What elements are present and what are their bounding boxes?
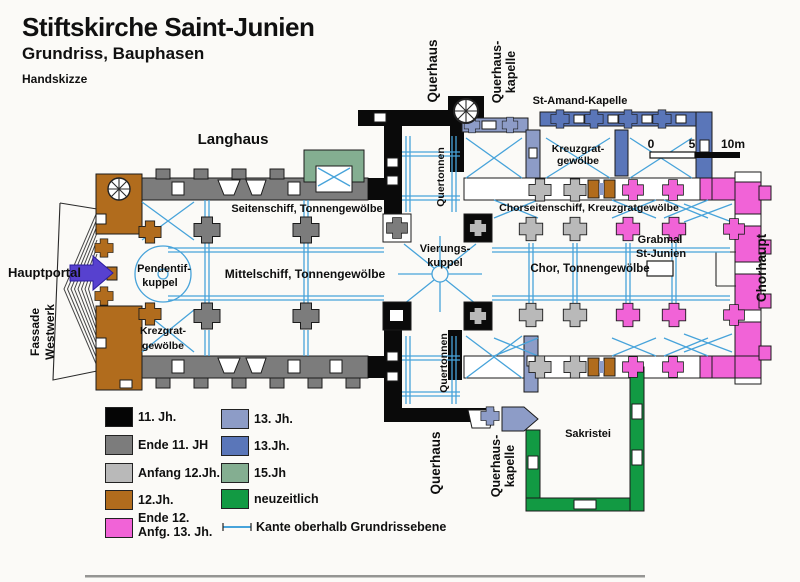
legend-label-ende12-1: Ende 12. <box>138 512 189 525</box>
label-querhaus-kapelle-north-1: Querhaus- <box>490 41 504 104</box>
legend-label-13jh-hell: 13. Jh. <box>254 413 293 426</box>
page: Stiftskirche Saint-Junien Grundriss, Bau… <box>0 0 800 582</box>
legend-label-anfang12: Anfang 12.Jh. <box>138 467 220 480</box>
legend-label-neuzeitlich: neuzeitlich <box>254 493 319 506</box>
label-quertonnen-south: Quertonnen <box>438 333 450 393</box>
scale-ten: 10m <box>721 137 745 151</box>
legend-swatch-11jh <box>105 407 133 427</box>
label-hauptportal: Hauptportal <box>8 265 81 280</box>
legend-swatch-12jh <box>105 490 133 510</box>
label-mittelschiff: Mittelschiff, Tonnengewölbe <box>225 267 386 281</box>
scale-zero: 0 <box>648 137 655 151</box>
label-querhaus-south: Querhaus <box>428 431 443 494</box>
label-st-amand: St-Amand-Kapelle <box>533 95 628 107</box>
legend-swatch-ende12 <box>105 518 133 538</box>
tomb-rectangle <box>647 261 673 276</box>
label-querhaus-kapelle-south-2: kapelle <box>503 445 517 487</box>
nave-south-wall <box>142 356 386 388</box>
altar-rectangle <box>716 252 736 286</box>
label-kreuzgrat-2: gewölbe <box>557 155 599 167</box>
legend-label-edge-note: Kante oberhalb Grundrissebene <box>256 521 446 534</box>
label-sakristei: Sakristei <box>565 428 611 440</box>
legend-label-12jh: 12.Jh. <box>138 494 173 507</box>
legend-label-ende11: Ende 11. JH <box>138 439 208 452</box>
legend-swatch-neuzeitlich <box>221 489 249 509</box>
legend-swatch-15jh <box>221 463 249 483</box>
label-fassade-2: Westwerk <box>43 304 57 360</box>
choir-north-wall <box>464 178 736 200</box>
legend-label-ende12-2: Anfg. 13. Jh. <box>138 526 212 539</box>
label-chorhaupt: Chorhaupt <box>754 233 769 302</box>
label-grabmal-1: Grabmal <box>638 234 683 246</box>
scan-edge-line <box>85 575 645 578</box>
label-chorseitenschiff: Chorseitenschiff, Kreuzgratgewölbe <box>499 202 679 214</box>
label-krezgrat-1: Krezgrat- <box>140 325 187 337</box>
choir-south-wall <box>464 356 736 378</box>
west-facade-steps <box>53 203 97 380</box>
label-querhaus-kapelle-south-1: Querhaus- <box>489 435 503 498</box>
legend-swatch-13jh-hell <box>221 409 249 429</box>
crossing-pillars <box>383 214 492 330</box>
stair-turret-northwest <box>108 178 130 200</box>
legend-swatch-ende11 <box>105 435 133 455</box>
label-kreuzgrat-1: Kreuzgrat- <box>552 143 605 155</box>
label-krezgrat-2: gewölbe <box>142 340 184 352</box>
label-pendentifkuppel-1: Pendentif- <box>137 263 191 275</box>
legend-label-11jh: 11. Jh. <box>138 411 176 424</box>
legend-label-13jh: 13.Jh. <box>254 440 289 453</box>
legend-label-15jh: 15.Jh <box>254 467 286 480</box>
label-grabmal-2: St-Junien <box>636 248 686 260</box>
legend-swatch-13jh <box>221 436 249 456</box>
edge-line-symbol <box>220 521 254 533</box>
label-seitenschiff: Seitenschiff, Tonnengewölbe <box>231 203 382 215</box>
label-querhaus-kapelle-north-2: kapelle <box>504 51 518 93</box>
label-vierungskuppel-1: Vierungs- <box>420 243 471 255</box>
label-langhaus: Langhaus <box>198 131 269 148</box>
scale-five: 5 <box>689 137 696 151</box>
stair-turret-transept <box>454 99 478 123</box>
legend-swatch-anfang12 <box>105 463 133 483</box>
label-pendentifkuppel-2: kuppel <box>142 277 177 289</box>
label-quertonnen-north: Quertonnen <box>435 147 447 207</box>
label-chor: Chor, Tonnengewölbe <box>530 263 649 275</box>
label-querhaus-north: Querhaus <box>425 39 440 102</box>
label-vierungskuppel-2: kuppel <box>427 257 462 269</box>
label-fassade-1: Fassade <box>28 308 42 356</box>
